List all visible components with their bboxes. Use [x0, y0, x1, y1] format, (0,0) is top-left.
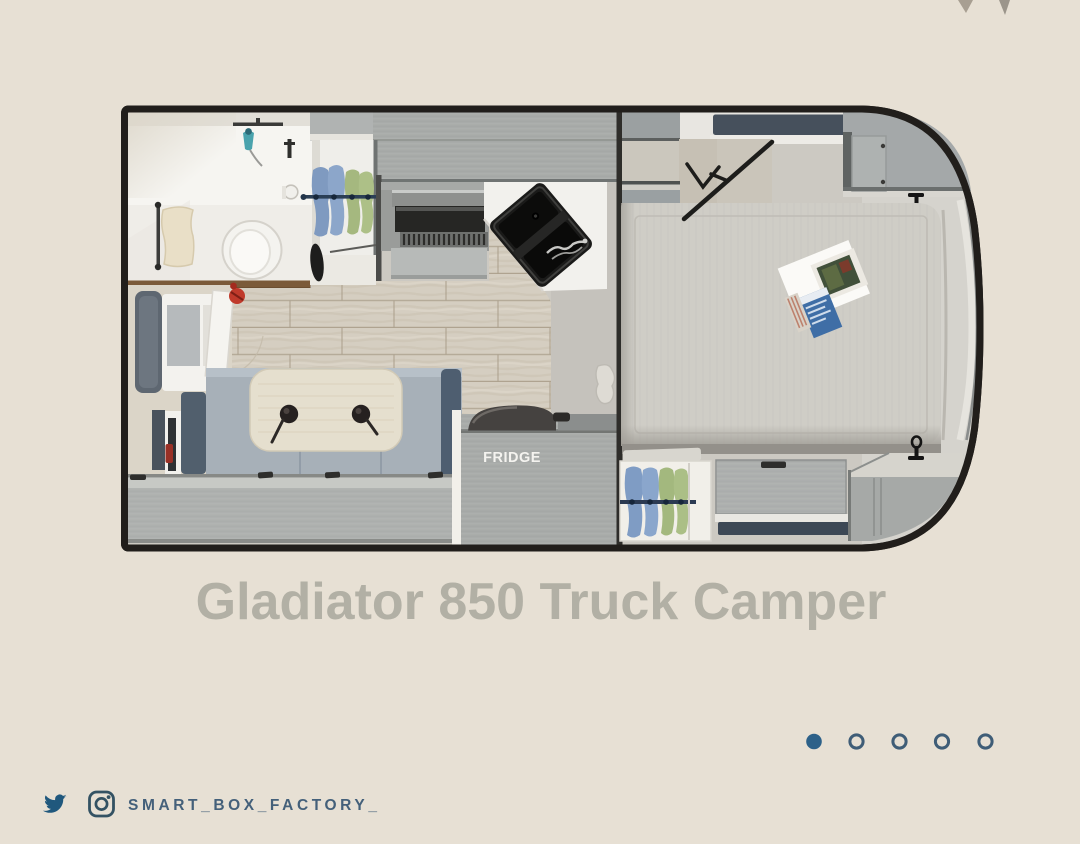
svg-text:Gladiator 850 Truck Camper: Gladiator 850 Truck Camper: [196, 573, 887, 631]
svg-text:FRIDGE: FRIDGE: [483, 450, 541, 466]
svg-text:SMART_BOX_FACTORY_: SMART_BOX_FACTORY_: [128, 797, 381, 814]
